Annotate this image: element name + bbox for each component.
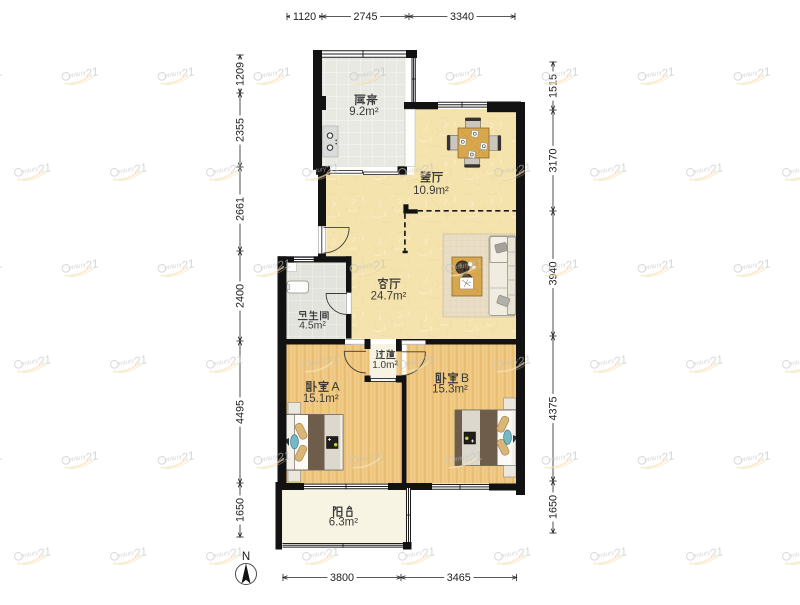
svg-text:3465: 3465 xyxy=(447,572,471,584)
svg-text:1120: 1120 xyxy=(293,11,316,23)
svg-text:4495: 4495 xyxy=(235,400,247,424)
svg-text:15.3m²: 15.3m² xyxy=(432,383,468,395)
svg-text:3340: 3340 xyxy=(450,11,474,23)
svg-text:9.2m²: 9.2m² xyxy=(349,106,379,118)
svg-text:10.9m²: 10.9m² xyxy=(413,185,449,197)
svg-text:1209: 1209 xyxy=(235,62,247,86)
svg-text:15.1m²: 15.1m² xyxy=(303,393,339,405)
svg-text:3170: 3170 xyxy=(548,148,560,172)
svg-text:2400: 2400 xyxy=(235,284,247,308)
svg-text:3800: 3800 xyxy=(330,572,354,584)
svg-text:1650: 1650 xyxy=(235,498,247,522)
svg-text:4375: 4375 xyxy=(548,396,560,420)
svg-text:2661: 2661 xyxy=(235,197,247,221)
svg-text:6.3m²: 6.3m² xyxy=(329,517,359,529)
svg-text:2745: 2745 xyxy=(353,11,377,23)
svg-text:4.5m²: 4.5m² xyxy=(299,319,326,331)
svg-text:A: A xyxy=(331,380,340,394)
svg-text:2355: 2355 xyxy=(235,118,247,142)
svg-text:1.0m²: 1.0m² xyxy=(372,360,398,371)
svg-text:24.7m²: 24.7m² xyxy=(371,291,407,303)
svg-text:1650: 1650 xyxy=(548,495,560,519)
